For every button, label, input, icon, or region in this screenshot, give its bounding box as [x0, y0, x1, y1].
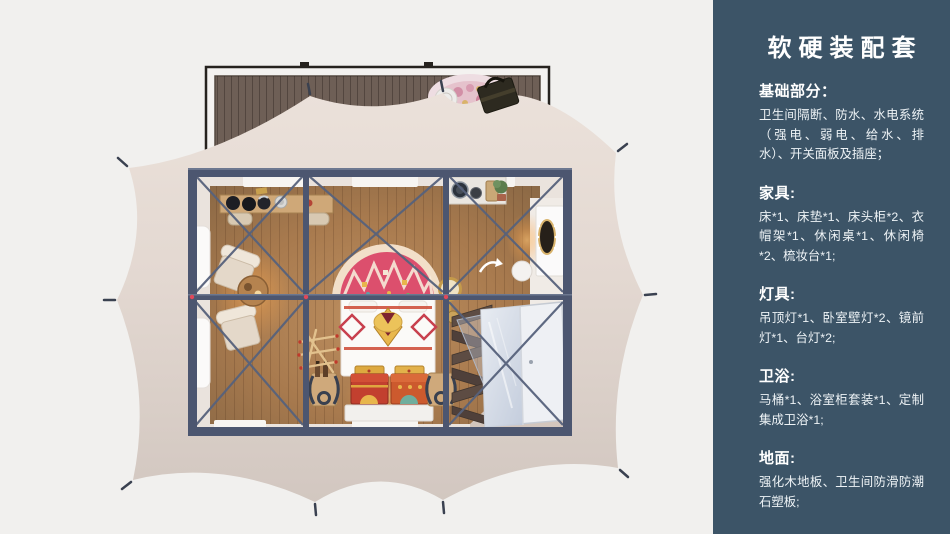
section-bathroom-heading: 卫浴:	[759, 365, 924, 386]
floorplan-render	[0, 0, 713, 534]
section-lighting-body: 吊顶灯*1、卧室壁灯*2、镜前灯*1、台灯*2;	[759, 309, 924, 348]
section-basics-body: 卫生间隔断、防水、水电系统（强电、弱电、给水、排水）、开关面板及插座；	[759, 106, 924, 165]
section-flooring-body: 强化木地板、卫生间防滑防潮石塑板;	[759, 473, 924, 512]
section-bathroom-body: 马桶*1、浴室柜套装*1、定制集成卫浴*1;	[759, 391, 924, 430]
hat	[226, 196, 240, 210]
tent-floorplan-svg	[0, 0, 713, 534]
sidebar-title: 软硬装配套	[759, 28, 924, 63]
section-lighting: 灯具: 吊顶灯*1、卧室壁灯*2、镜前灯*1、台灯*2;	[759, 283, 924, 348]
entry-platform	[345, 405, 433, 421]
section-furniture: 家具: 床*1、床垫*1、床头柜*2、衣帽架*1、休闲桌*1、休闲椅*2、梳妆台…	[759, 182, 924, 267]
package-sidebar: 软硬装配套 基础部分： 卫生间隔断、防水、水电系统（强电、弱电、给水、排水）、开…	[713, 0, 950, 534]
section-lighting-heading: 灯具:	[759, 283, 924, 304]
plant-pot	[497, 194, 506, 201]
slide: 软硬装配套 基础部分： 卫生间隔断、防水、水电系统（强电、弱电、给水、排水）、开…	[0, 0, 950, 534]
section-furniture-body: 床*1、床垫*1、床头柜*2、衣帽架*1、休闲桌*1、休闲椅*2、梳妆台*1;	[759, 208, 924, 267]
pot	[471, 188, 482, 199]
tea-table	[238, 276, 268, 306]
section-basics-heading: 基础部分：	[759, 80, 924, 101]
section-basics: 基础部分： 卫生间隔断、防水、水电系统（强电、弱电、给水、排水）、开关面板及插座…	[759, 80, 924, 165]
section-furniture-heading: 家具:	[759, 182, 924, 203]
stool	[512, 261, 532, 281]
door-handle	[529, 360, 533, 364]
hat	[242, 197, 256, 211]
wash-counter	[448, 177, 508, 204]
section-flooring-heading: 地面:	[759, 447, 924, 468]
mirror-with-lights	[539, 220, 555, 254]
bottle	[323, 364, 328, 377]
section-flooring: 地面: 强化木地板、卫生间防滑防潮石塑板;	[759, 447, 924, 512]
bed	[340, 296, 436, 376]
foot-bench	[427, 373, 456, 406]
section-bathroom: 卫浴: 马桶*1、浴室柜套装*1、定制集成卫浴*1;	[759, 365, 924, 430]
